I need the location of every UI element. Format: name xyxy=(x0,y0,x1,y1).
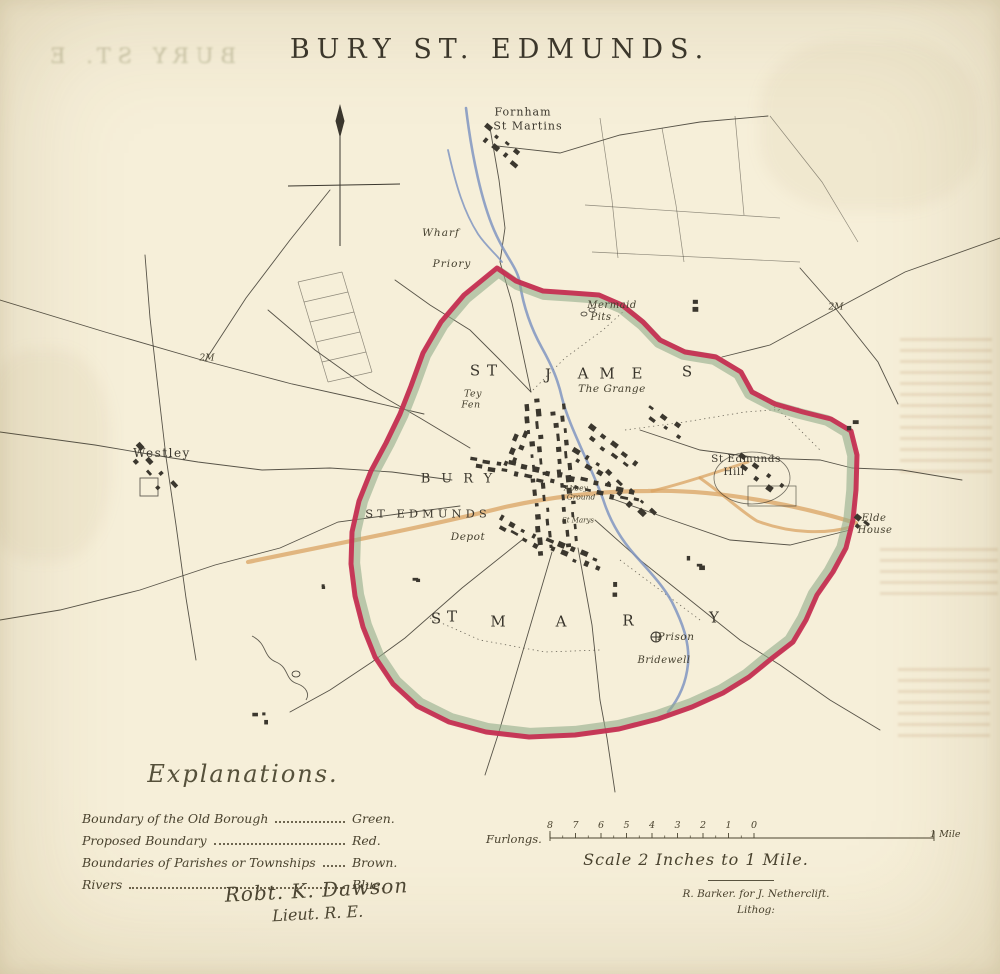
legend-heading: Explanations. xyxy=(82,760,404,788)
imprint-name: R. Barker. for J. Netherclift. xyxy=(646,888,866,900)
lithographer-imprint: R. Barker. for J. Netherclift. Lithog: xyxy=(646,888,866,916)
map-title: BURY ST. EDMUNDS. xyxy=(0,34,1000,65)
legend-row-0: Boundary of the Old BoroughGreen. xyxy=(82,804,404,826)
prison-symbol xyxy=(651,632,661,642)
river-lark xyxy=(466,108,688,712)
legend-row-2: Boundaries of Parishes or TownshipsBrown… xyxy=(82,848,404,870)
mile-label: 1 Mile xyxy=(930,829,961,840)
legend: Explanations. Boundary of the Old Boroug… xyxy=(82,760,404,892)
legend-dotted-leader xyxy=(275,821,345,823)
parish-boundary-brown xyxy=(248,491,856,562)
legend-color-word: Red. xyxy=(352,833,404,848)
map-sheet: BURY ST. E FornhamSt MartinsWharfPrioryM… xyxy=(0,0,1000,974)
legend-color-word: Brown. xyxy=(352,855,404,870)
imprint-lithog: Lithog: xyxy=(646,904,866,916)
imprint-divider xyxy=(708,880,774,881)
scale-caption: Scale 2 Inches to 1 Mile. xyxy=(546,850,846,869)
legend-dotted-leader xyxy=(323,865,345,867)
legend-label: Proposed Boundary xyxy=(82,833,207,848)
legend-row-1: Proposed BoundaryRed. xyxy=(82,826,404,848)
legend-label: Boundaries of Parishes or Townships xyxy=(82,855,316,870)
north-compass-icon xyxy=(288,104,400,246)
legend-dotted-leader xyxy=(214,843,345,845)
scale-bar: Furlongs. 876543210 1 Mile Scale 2 Inche… xyxy=(486,820,1000,940)
legend-label: Boundary of the Old Borough xyxy=(82,811,268,826)
legend-color-word: Green. xyxy=(352,811,404,826)
town-buildings xyxy=(133,123,870,725)
legend-label: Rivers xyxy=(82,877,122,892)
